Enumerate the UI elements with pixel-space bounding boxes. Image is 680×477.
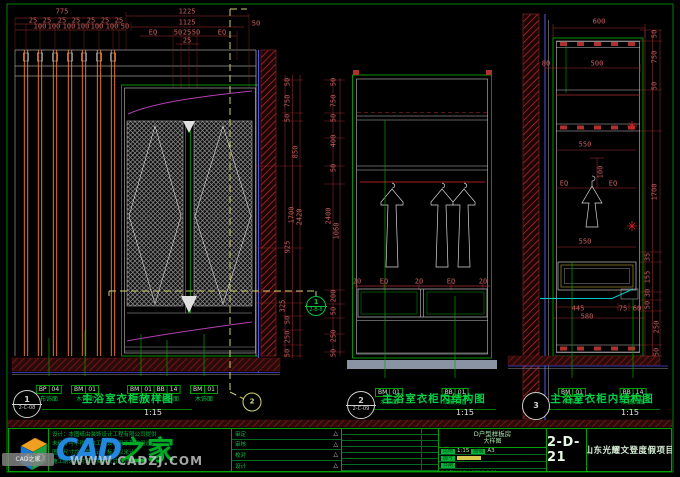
approval-label: 设计 [235,462,246,470]
sheet-info-footer: D户型样板房大样图 2-D-21 [439,469,546,471]
tag-leaders [385,120,455,378]
sheet-title-line1: D户型样板房 [439,430,546,438]
blocking-band-bottom [560,347,635,351]
revision-triangle-icon: △ [333,430,338,437]
tb-sheet-info: D户型样板房 大样图 比例1:15图幅A3图号日期 D户型样板房大样图 2-D-… [438,429,546,471]
tb-revision-table [341,429,438,471]
blocking-band-mid [560,126,635,130]
flower-mark [627,221,637,231]
drawer-box [358,289,487,317]
cad-drawing [0,0,680,477]
clothes-hangers [381,183,475,267]
counter-line [540,289,633,299]
floor-hatch [508,356,660,365]
wall-section-hatch [261,50,276,356]
sheet-title-line2: 大样图 [439,438,546,446]
title-block-note: 图中尺寸均以毫米计，标高以米计 [52,449,228,458]
sheet-info-row: 比例1:15图幅A3 [439,448,546,455]
cad-sheet: 7752525252525252510010010010010010050122… [0,0,680,477]
info-label-chip: 比例 [441,449,455,454]
tb-approval-table: 审定△审核△校对△设计△ [231,429,341,471]
revision-triangle-icon: △ [333,462,338,469]
info-label-chip: 图幅 [471,449,485,454]
dim-lines-top [15,16,249,44]
sheet-title: D户型样板房 大样图 [439,429,546,448]
revision-triangle-icon: △ [333,451,338,458]
base-plinth [347,360,497,369]
clothes-hanger-side [582,176,602,227]
panel-3-wardrobe-section [508,14,668,420]
title-block-note: 施工前须核对现场实际尺寸后方可施工 [52,458,228,467]
sheet-info-row: 日期 [439,462,546,469]
project-name: 山东光耀文登度假项目 [586,444,672,456]
cabinet-outline [553,38,643,356]
blocking-band-top [560,42,635,46]
wood-slats [24,50,114,356]
approval-row: 设计△ [232,461,341,472]
title-block-note: 未经许可不得将本工程设计用于其他用途 [52,440,228,449]
approval-label: 校对 [235,451,246,459]
info-label-chip: 日期 [441,463,455,468]
sheet-info-row: 图号 [439,455,546,462]
approval-label: 审定 [235,430,246,438]
approval-label: 审核 [235,440,246,448]
highlight-bar [457,456,481,460]
approval-row: 审核△ [232,440,341,451]
panel-1-wardrobe-elevation [12,9,316,399]
title-block: 设计：本图纸由装饰设计工程有限公司提供未经许可不得将本工程设计用于其他用途图中尺… [8,428,672,472]
approval-row: 校对△ [232,450,341,461]
info-value: A3 [487,448,494,454]
panel-2-wardrobe-structure [324,70,497,378]
floor-hatch [12,358,280,371]
drawing-number: 2-D-21 [547,435,586,465]
drawing-number-cell: 2-D-21 [546,429,586,471]
tb-margin-cell [9,429,48,471]
door-leaf-right [194,121,252,306]
project-name-cell: 山东光耀文登度假项目 [586,429,672,471]
door-leaf-left [127,121,183,306]
revision-row [342,465,438,471]
door-arrow-top [183,121,195,133]
title-block-note: 设计：本图纸由装饰设计工程有限公司提供 [52,431,228,440]
approval-row: 审定△ [232,429,341,440]
revision-triangle-icon: △ [333,441,338,448]
tb-notes: 设计：本图纸由装饰设计工程有限公司提供未经许可不得将本工程设计用于其他用途图中尺… [48,429,231,471]
bottom-wall-bar [8,420,672,427]
info-label-chip: 图号 [441,456,455,461]
cabinet-outline [353,75,492,358]
shelves [357,116,488,170]
info-value: 1:15 [457,448,469,454]
